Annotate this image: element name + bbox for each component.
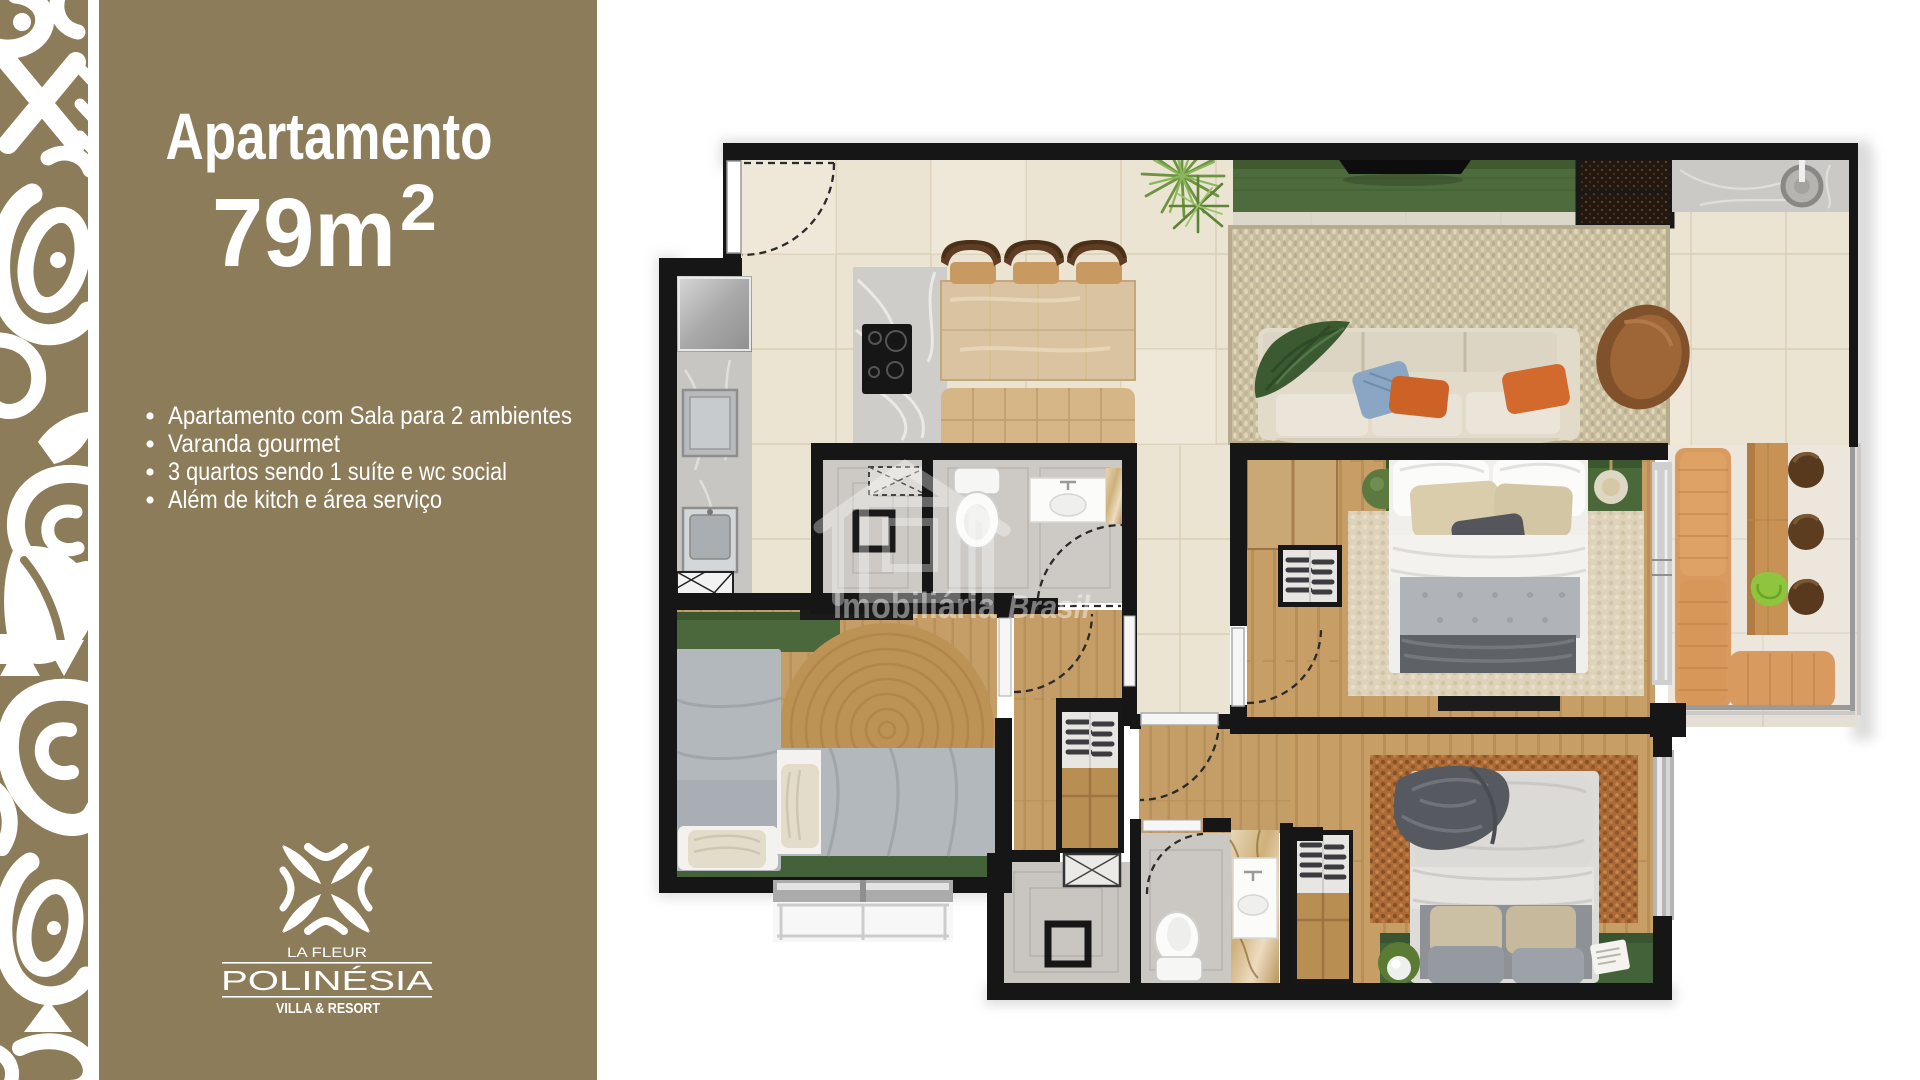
svg-text:LA FLEUR: LA FLEUR <box>287 944 367 960</box>
svg-text:Além de kitch e área serviço: Além de kitch e área serviço <box>168 486 442 514</box>
svg-text:Apartamento com Sala para 2 am: Apartamento com Sala para 2 ambientes <box>168 402 572 430</box>
svg-text:Imobiliária: Imobiliária <box>833 585 997 626</box>
svg-text:Brasil: Brasil <box>1008 589 1091 625</box>
svg-text:2: 2 <box>400 170 437 244</box>
svg-text:Apartamento: Apartamento <box>166 99 493 173</box>
svg-text:79m: 79m <box>212 178 396 287</box>
svg-text:VILLA & RESORT: VILLA & RESORT <box>276 1000 380 1017</box>
svg-text:Varanda gourmet: Varanda gourmet <box>168 430 340 458</box>
svg-text:3 quartos sendo 1 suíte e wc s: 3 quartos sendo 1 suíte e wc social <box>168 458 507 486</box>
svg-text:POLINÉSIA: POLINÉSIA <box>221 965 433 996</box>
